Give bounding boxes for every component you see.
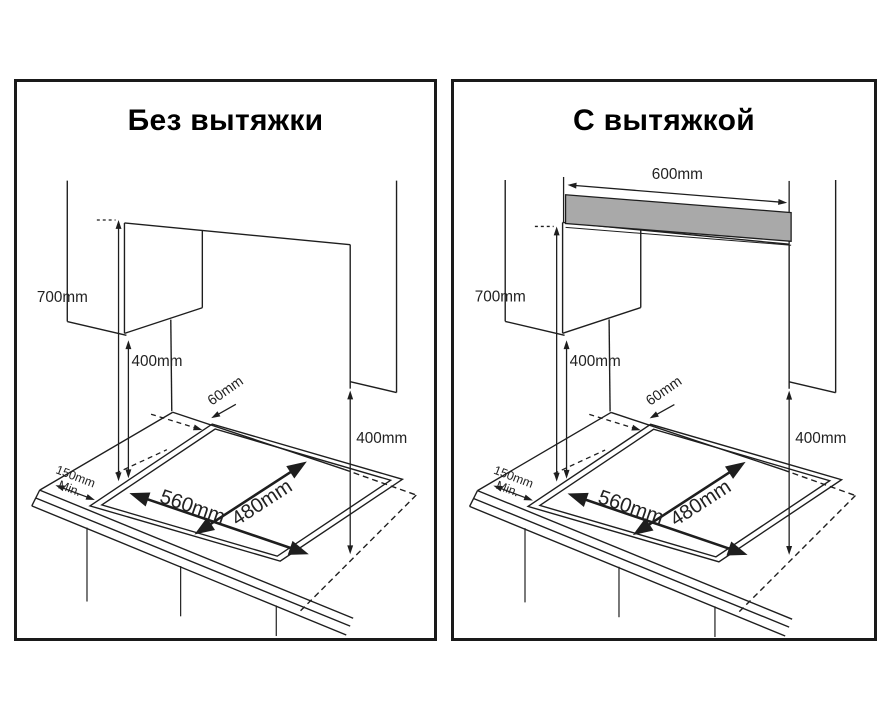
dim-arrow-560mm-head	[129, 492, 150, 506]
hidden-gap-leader	[116, 450, 167, 474]
dim-label-60mm: 60mm	[205, 373, 247, 409]
countertop-front-band-bottom	[32, 506, 346, 635]
dim-label-480mm: 480mm	[666, 476, 735, 531]
dim-label-side-400mm: 400mm	[356, 430, 407, 447]
dim-arrow-side-400mm-head	[786, 546, 792, 555]
dim-arrow-600mm-head	[568, 183, 577, 189]
hidden-gap-leader	[554, 450, 605, 474]
countertop-front-band-bottom	[470, 506, 786, 636]
dim-arrow-480mm-head	[725, 462, 746, 479]
cabinet-bottom-left-edge	[505, 321, 564, 335]
panel-with-hood: 700mm400mm400mm60mm150mmMin.560mm480mm60…	[451, 79, 877, 641]
wall-to-sidewall-edge	[350, 382, 396, 393]
dim-arrow-700mm-head	[116, 220, 122, 229]
dim-arrow-600mm-head	[778, 199, 787, 205]
dim-arrow-400mm-head	[125, 340, 131, 349]
panel-title-with-hood: С вытяжкой	[454, 104, 874, 138]
dim-label-60mm: 60mm	[643, 373, 685, 409]
countertop-left-cap	[32, 490, 40, 506]
countertop-back-left-edge	[40, 412, 173, 490]
dim-arrow-400mm-head	[564, 470, 570, 479]
dim-label-560mm: 560mm	[595, 486, 666, 529]
dim-arrow-560mm-head	[568, 493, 589, 507]
dim-arrow-wall-gap-head	[193, 425, 202, 431]
hob-cutout-outline	[540, 429, 830, 557]
dim-arrow-60mm-shaft	[655, 405, 674, 416]
dim-arrow-wall-gap-head	[631, 425, 640, 431]
countertop-left-cap	[470, 491, 478, 507]
dim-arrow-side-400mm-head	[347, 545, 353, 554]
wall-top-edge	[124, 223, 350, 245]
panel-title-without-hood: Без вытяжки	[17, 104, 434, 138]
hob-cutout-outline	[102, 429, 391, 556]
dim-arrow-700mm-head	[116, 472, 122, 481]
diagram-without-hood: 700mm400mm400mm60mm150mmMin.560mm480mm	[17, 82, 434, 638]
diagram-with-hood: 700mm400mm400mm60mm150mmMin.560mm480mm60…	[454, 82, 874, 638]
dim-label-400mm: 400mm	[570, 353, 621, 370]
countertop-right-edge-hidden	[737, 496, 856, 615]
countertop-right-edge-hidden	[298, 495, 416, 613]
dim-label-700mm: 700mm	[475, 289, 526, 306]
dim-arrow-side-400mm-head	[347, 391, 353, 400]
dim-arrow-560mm-head	[288, 541, 309, 555]
dim-label-600mm: 600mm	[652, 166, 703, 183]
dim-arrow-150mm-min-head	[86, 494, 95, 500]
dim-arrow-560mm-head	[726, 541, 747, 555]
dim-arrow-700mm-head	[554, 473, 560, 482]
cabinet-bottom-front-edge	[124, 308, 202, 334]
dim-label-480mm: 480mm	[228, 475, 296, 530]
dim-label-560mm: 560mm	[157, 486, 228, 529]
dim-arrow-60mm-shaft	[217, 404, 236, 415]
cabinet-bottom-left-edge	[67, 322, 126, 336]
page: 700mm400mm400mm60mm150mmMin.560mm480mm Б…	[0, 0, 884, 724]
dim-arrow-60mm-head	[650, 411, 659, 418]
countertop-back-left-edge	[478, 412, 612, 490]
cabinet-bottom-front-edge	[563, 308, 641, 334]
dim-label-side-400mm: 400mm	[795, 430, 846, 447]
dim-arrow-60mm-head	[211, 411, 220, 418]
dim-arrow-400mm-head	[125, 469, 131, 478]
dim-arrow-150mm-min-head	[524, 495, 533, 501]
dim-arrow-700mm-head	[554, 226, 560, 235]
wall-to-sidewall-edge	[789, 382, 835, 393]
panel-without-hood: 700mm400mm400mm60mm150mmMin.560mm480mm Б…	[14, 79, 437, 641]
dim-label-400mm: 400mm	[132, 353, 183, 370]
dim-label-700mm: 700mm	[37, 289, 88, 306]
hood-band	[566, 195, 792, 241]
dim-arrow-480mm-head	[286, 462, 307, 479]
dim-arrow-400mm-head	[564, 340, 570, 349]
dim-arrow-side-400mm-head	[786, 391, 792, 400]
